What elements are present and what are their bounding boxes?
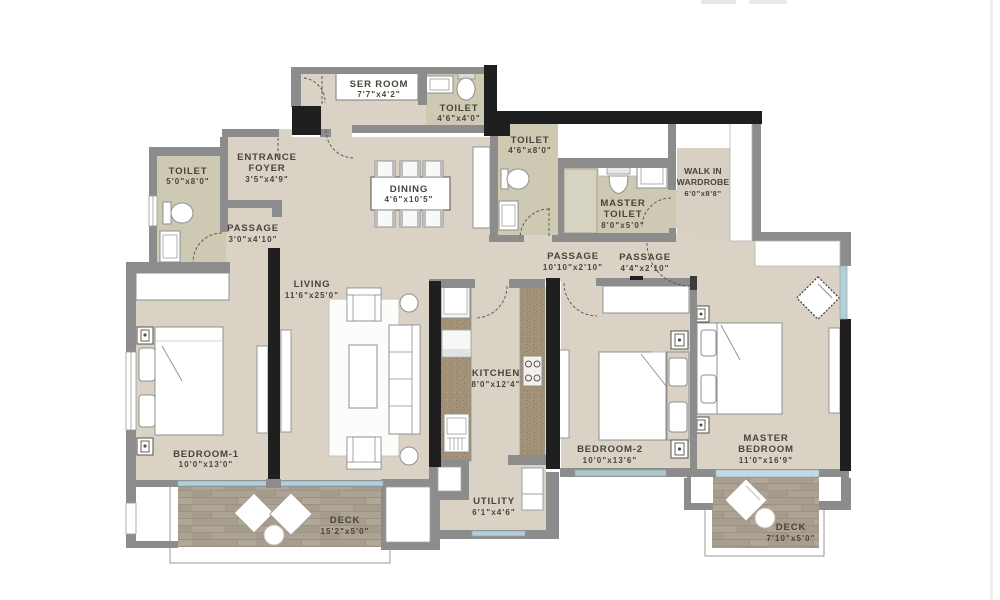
svg-text:4'6"x8'0": 4'6"x8'0": [508, 146, 552, 155]
svg-text:11'6"x25'0": 11'6"x25'0": [285, 291, 339, 300]
svg-text:LIVING: LIVING: [294, 279, 331, 290]
svg-text:11'0"x16'9": 11'0"x16'9": [739, 456, 793, 465]
svg-text:BEDROOM-2: BEDROOM-2: [577, 444, 643, 455]
svg-text:4'6"x4'0": 4'6"x4'0": [437, 114, 481, 123]
svg-text:3'0"x4'10": 3'0"x4'10": [228, 235, 277, 244]
svg-text:ENTRANCE: ENTRANCE: [237, 152, 297, 163]
svg-text:7'7"x4'2": 7'7"x4'2": [357, 90, 401, 99]
svg-text:3'5"x4'9": 3'5"x4'9": [245, 175, 289, 184]
svg-text:BEDROOM: BEDROOM: [738, 444, 794, 455]
svg-text:MASTER: MASTER: [600, 198, 645, 209]
svg-text:5'0"x8'0": 5'0"x8'0": [166, 177, 210, 186]
svg-text:8'0"x12'4": 8'0"x12'4": [471, 380, 520, 389]
svg-text:10'0"x13'6": 10'0"x13'6": [583, 456, 638, 465]
svg-text:TOILET: TOILET: [440, 103, 479, 114]
svg-text:BEDROOM-1: BEDROOM-1: [173, 449, 239, 460]
svg-text:7'10"x5'0": 7'10"x5'0": [766, 534, 815, 543]
svg-text:TOILET: TOILET: [169, 166, 208, 177]
svg-text:FOYER: FOYER: [248, 163, 285, 174]
svg-text:15'2"x5'0": 15'2"x5'0": [320, 527, 369, 536]
svg-text:TOILET: TOILET: [511, 135, 550, 146]
svg-text:6'1"x4'6": 6'1"x4'6": [472, 508, 516, 517]
svg-text:TOILET: TOILET: [604, 209, 643, 220]
svg-text:6'0"x8'8": 6'0"x8'8": [684, 189, 721, 198]
svg-text:KITCHEN: KITCHEN: [472, 368, 520, 379]
svg-text:8'0"x5'0": 8'0"x5'0": [601, 221, 645, 230]
svg-text:UTILITY: UTILITY: [473, 496, 515, 507]
svg-text:10'10"x2'10": 10'10"x2'10": [543, 263, 603, 272]
svg-text:WARDROBE: WARDROBE: [677, 177, 730, 187]
svg-text:4'6"x10'5": 4'6"x10'5": [384, 195, 433, 204]
svg-text:4'4"x2'10": 4'4"x2'10": [620, 264, 669, 273]
svg-text:DECK: DECK: [330, 515, 360, 526]
svg-text:PASSAGE: PASSAGE: [227, 223, 279, 234]
svg-text:WALK IN: WALK IN: [684, 166, 722, 176]
svg-text:PASSAGE: PASSAGE: [619, 252, 671, 263]
svg-text:10'0"x13'0": 10'0"x13'0": [179, 460, 234, 469]
svg-text:DECK: DECK: [776, 522, 806, 533]
svg-text:PASSAGE: PASSAGE: [547, 251, 599, 262]
svg-text:DINING: DINING: [390, 184, 428, 195]
svg-text:MASTER: MASTER: [743, 433, 788, 444]
svg-text:SER ROOM: SER ROOM: [350, 79, 409, 90]
